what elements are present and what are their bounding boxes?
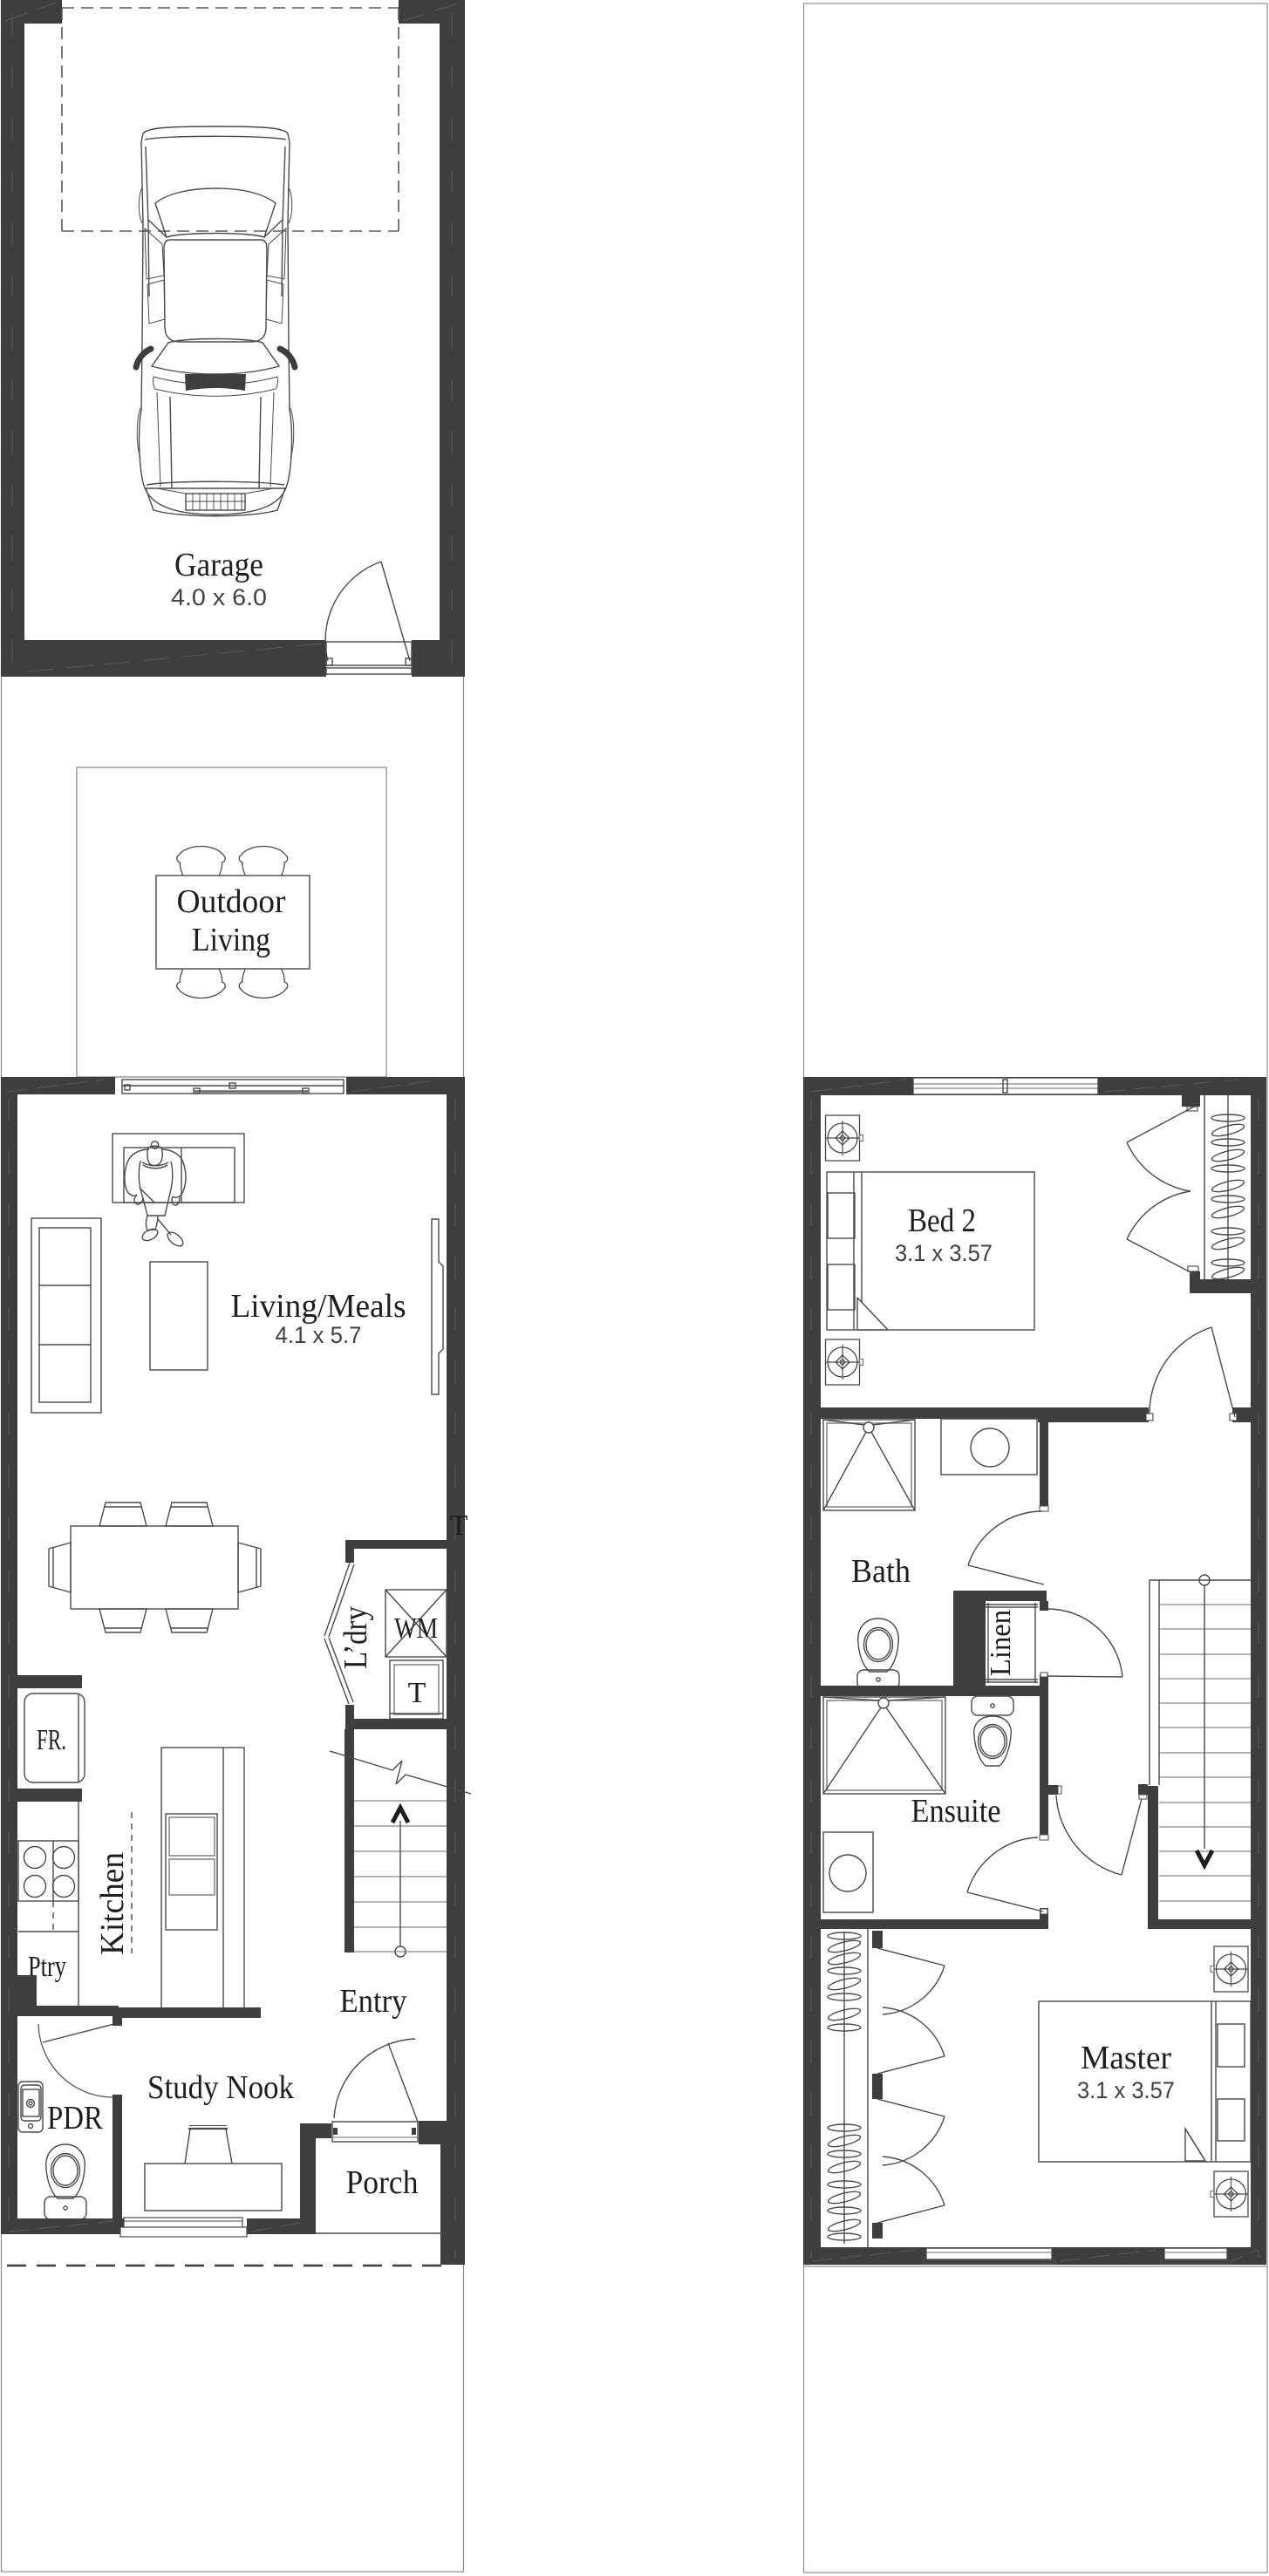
svg-text:Ensuite: Ensuite — [911, 1793, 1001, 1830]
svg-text:Living/Meals: Living/Meals — [231, 1288, 406, 1325]
svg-text:3.1 x 3.57: 3.1 x 3.57 — [895, 1240, 993, 1266]
svg-text:L’dry: L’dry — [338, 1606, 374, 1669]
svg-text:FR.: FR. — [37, 1724, 66, 1756]
svg-text:T: T — [450, 1509, 468, 1542]
svg-text:4.0 x 6.0: 4.0 x 6.0 — [171, 584, 267, 610]
svg-text:Kitchen: Kitchen — [94, 1852, 131, 1955]
svg-text:Outdoor: Outdoor — [177, 883, 286, 920]
svg-text:Porch: Porch — [346, 2164, 419, 2201]
svg-text:T: T — [408, 1677, 426, 1709]
svg-text:Garage: Garage — [174, 547, 263, 583]
svg-text:PDR: PDR — [47, 2100, 104, 2136]
svg-text:Entry: Entry — [340, 1983, 407, 2020]
svg-text:Living: Living — [192, 922, 270, 958]
svg-text:Study Nook: Study Nook — [147, 2069, 294, 2106]
svg-text:4.1 x 5.7: 4.1 x 5.7 — [276, 1322, 362, 1348]
svg-text:3.1 x 3.57: 3.1 x 3.57 — [1077, 2077, 1175, 2103]
svg-text:Linen: Linen — [985, 1610, 1017, 1676]
svg-text:Bed 2: Bed 2 — [908, 1203, 976, 1239]
svg-text:WM: WM — [394, 1612, 438, 1645]
svg-text:Master: Master — [1081, 2040, 1171, 2076]
svg-text:Bath: Bath — [851, 1553, 911, 1590]
